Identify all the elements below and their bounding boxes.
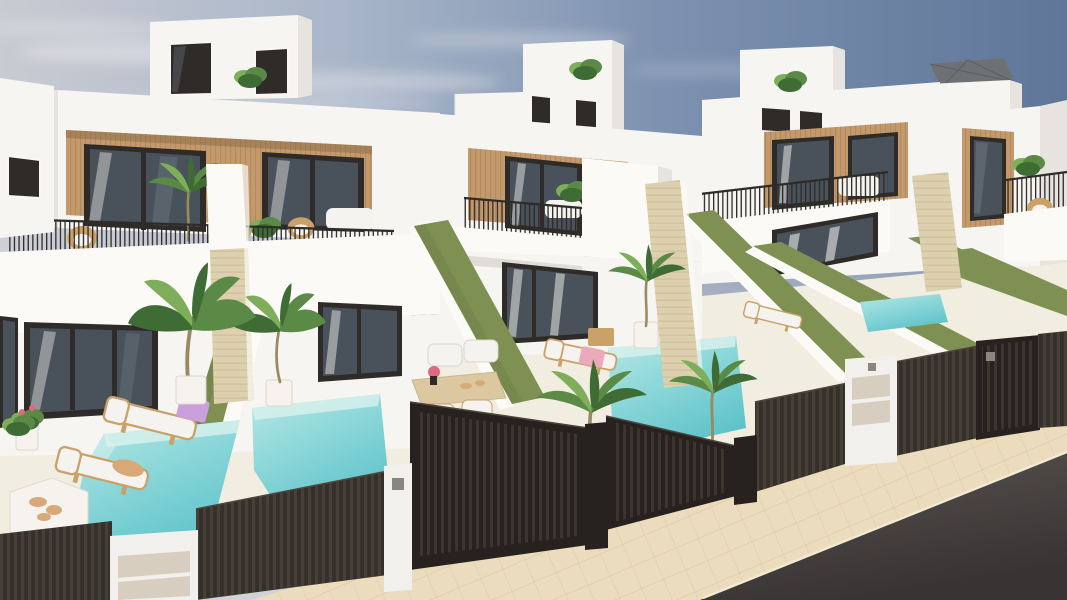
gate-lock (986, 352, 995, 361)
utility-pillar (845, 355, 897, 466)
balcony-sofa (326, 208, 374, 230)
gate-pillar (384, 463, 412, 592)
balcony-parapet (1004, 206, 1067, 262)
small-window (8, 156, 40, 198)
roof-slit-window (762, 108, 790, 132)
keypad (392, 478, 404, 490)
gate-post (734, 435, 757, 505)
side-table (588, 328, 614, 346)
villa-render-image: Aerial 3D architectural render of a row … (0, 0, 1067, 600)
gate-post (585, 422, 608, 550)
architectural-render: Aerial 3D architectural render of a row … (0, 0, 1067, 600)
bench-cushion (428, 344, 462, 366)
corner-volume (582, 158, 658, 262)
entrance-pillar (110, 530, 198, 600)
bench-cushion (464, 340, 498, 362)
